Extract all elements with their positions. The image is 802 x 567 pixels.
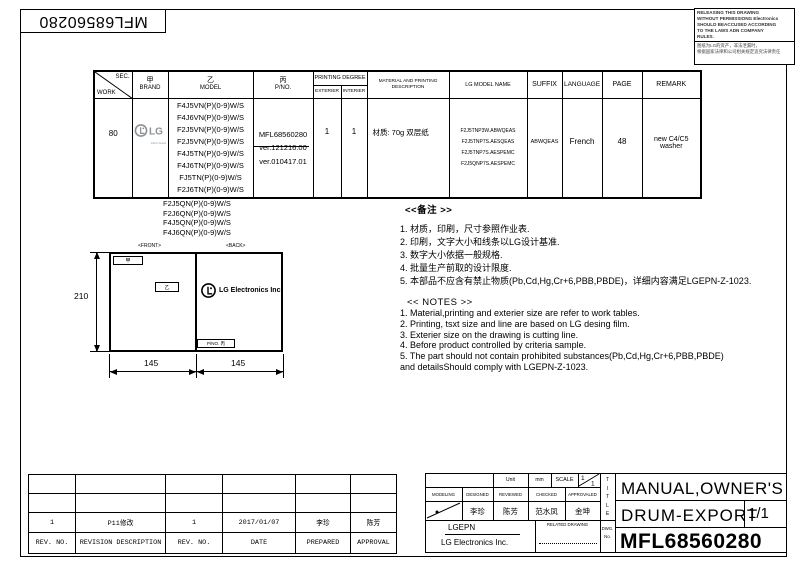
exterier-header: EXTERIER [313,85,341,98]
jia-box: 甲 [113,256,143,265]
lg-model-name-header: LG MODEL NAME [449,71,527,98]
page-header: PAGE [602,71,642,98]
extra-model-list: F2J5QN(P)(0-9)W/S F2J6QN(P)(0-9)W/S F4J5… [163,199,231,237]
title-vertical-label: T I T L E [601,476,614,519]
company-short: LGEPN [448,523,475,532]
related-drawing-dotted-line [539,543,597,544]
model-list-cell: F4J5VN(P)(0-9)W/S F4J6VN(P)(0-9)W/S F2J5… [168,98,253,198]
printing-degree-header: PRINTING DEGREE [313,71,367,85]
front-label: <FRONT> [138,243,161,249]
remark-cell: new C4/C5 washer [642,98,701,198]
revision-data-row: 1 P11修改 1 2017/01/07 李珍 陈芳 [29,513,397,533]
sec-work-header: SEC. WORK [94,71,132,98]
dim-line-height [96,252,97,352]
dwg-no-label: No. [601,534,614,539]
revision-empty-row-1 [29,475,397,494]
back-lg-logo [201,283,216,303]
model-header: 乙 MODEL [168,71,253,98]
reviewed-label: REVIEWED [493,492,528,497]
svg-text:1: 1 [591,481,595,488]
yi-box: 乙 [155,282,179,292]
dim-width-right-value: 145 [231,358,245,368]
interier-header: INTERIER [341,85,367,98]
unit-value: mm [528,477,551,483]
sheet-number: 1/1 [748,505,788,522]
revision-table: 1 P11修改 1 2017/01/07 李珍 陈芳 REV. NO. REVI… [28,474,397,554]
doc-title-line1: MANUAL,OWNER'S [621,479,783,499]
sec-work-value: 80 [94,98,132,198]
approvaled-name: 金坤 [565,506,600,517]
reviewed-name: 陈芳 [493,506,528,517]
drawing-number: MFL68560280 [620,530,762,554]
arrow-left-icon [110,369,117,375]
arrow-up-icon [94,252,100,259]
arrow-left-icon-2 [197,369,204,375]
brand-cell: LG Life's Good [132,98,168,198]
arrow-right-icon [189,369,196,375]
drawing-sheet: MFL68560280 RELEASING THIS DRAWING WITHO… [0,0,802,567]
material-value: 材质: 70g 双层纸 [367,98,449,198]
notes-chinese-title: <<备注 >> [405,202,751,216]
brand-header: 甲 BRAND [132,71,168,98]
release-notice-english: RELEASING THIS DRAWING WITHOUT PERMISSIO… [695,9,794,42]
pno-header: 丙 P/NO. [253,71,313,98]
unit-label: Unit [493,477,528,483]
designed-label: DESIGNED [462,492,493,497]
dim-line-right [197,371,283,372]
spec-table: SEC. WORK 甲 BRAND 乙 MODEL 丙 P/NO. PRINTI… [93,70,702,199]
pno-new-version: ver.010417.01 [254,155,313,169]
designed-name: 李珍 [462,506,493,517]
language-header: LANGUAGE [562,71,602,98]
language-value: French [562,98,602,198]
arrow-right-icon-2 [276,369,283,375]
remark-header: REMARK [642,71,701,98]
back-label: <BACK> [226,243,245,249]
arrow-down-icon [94,345,100,352]
company-divider [445,534,520,535]
revision-header-row: REV. NO. REVISION DESCRIPTION REV. NO. D… [29,533,397,554]
approvaled-label: APPROVALED [565,492,600,497]
back-logo-text: LG Electronics Inc. [219,287,282,294]
material-header: MATERIAL AND PRINTING DESCRIPTION [367,71,449,98]
svg-text:LG: LG [149,126,163,137]
scale-value: 1 1 [578,473,600,487]
scale-label: SCALE [551,477,578,483]
dim-width-left-value: 145 [144,358,158,368]
interier-value: 1 [341,98,367,198]
back-pno-box: P/NO. 丙 [197,339,235,348]
checked-name: 范水凤 [528,506,565,517]
dim-ext-right [283,354,284,378]
related-drawing-label: RELATED DRAWING [535,522,600,527]
revision-empty-row-2 [29,494,397,513]
company-full: LG Electronics Inc. [441,538,508,547]
modeling-mark-icon [436,511,439,514]
notes-english: << NOTES >> 1. Material,printing and ext… [400,297,724,373]
lg-face-icon [201,283,216,298]
pno-cell: MFL68560280 ver.121216.00 ver.010417.01 [253,98,313,198]
lg-model-names-cell: F2J5TNP3W.ABWQEAS F2J5TNP7S.AESQEAS F2J5… [449,98,527,198]
pno-old-version: ver.121216.00 [259,141,307,155]
release-notice-chinese: 图纸为LG的资产，非法泄漏时， 根据国家法律和公司相关规定追究法律责任 [695,42,794,56]
lg-logo-icon: LG [134,123,166,138]
exterier-value: 1 [313,98,341,198]
manual-fold-line [195,252,197,352]
pno-part-number: MFL68560280 [254,128,313,142]
notes-english-title: << NOTES >> [407,297,724,308]
dwg-label: DWG. [601,526,614,531]
doc-title-line2: DRUM-EXPORT [621,506,758,526]
modeling-slash [425,501,462,520]
svg-text:1: 1 [581,475,585,482]
dim-height-value: 210 [74,291,88,301]
suffix-header: SUFFIX [527,71,562,98]
notes-chinese: <<备注 >> 1. 材质，印刷，尺寸参照作业表. 2. 印刷，文字大小和线条以… [400,202,751,288]
dim-line-left [110,371,196,372]
lg-tagline: Life's Good [134,141,166,145]
rotated-part-number-box: MFL68560280 [20,9,166,33]
lg-logo: LG Life's Good [134,123,166,145]
checked-label: CHECKED [528,492,565,497]
scale-diagonal-icon: 1 1 [578,473,600,487]
modeling-label: MODELING [425,492,462,497]
release-notice-box: RELEASING THIS DRAWING WITHOUT PERMISSIO… [694,8,795,65]
suffix-value: ABWQEAS [527,98,562,198]
page-value: 48 [602,98,642,198]
rotated-part-number: MFL68560280 [39,12,148,30]
